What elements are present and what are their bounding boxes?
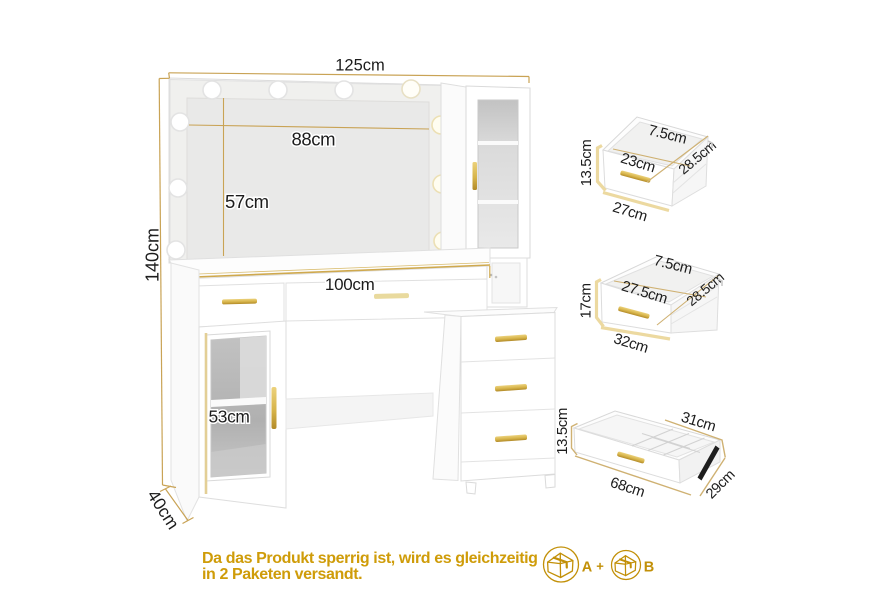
svg-text:A: A <box>582 560 593 576</box>
svg-text:100cm: 100cm <box>325 275 375 294</box>
svg-text:53cm: 53cm <box>209 406 250 426</box>
svg-text:29cm: 29cm <box>703 467 738 502</box>
svg-text:88cm: 88cm <box>291 129 335 150</box>
svg-text:in 2 Paketen versandt.: in 2 Paketen versandt. <box>202 566 362 583</box>
svg-text:Da das Produkt sperrig ist, wi: Da das Produkt sperrig ist, wird es glei… <box>202 550 538 567</box>
svg-text:17cm: 17cm <box>578 283 595 318</box>
svg-text:125cm: 125cm <box>335 57 385 75</box>
svg-text:B: B <box>644 560 654 576</box>
svg-text:57cm: 57cm <box>225 191 269 212</box>
svg-text:13.5cm: 13.5cm <box>554 408 571 455</box>
svg-text:140cm: 140cm <box>143 228 163 282</box>
svg-text:13.5cm: 13.5cm <box>578 140 595 187</box>
svg-text:+: + <box>596 559 604 574</box>
